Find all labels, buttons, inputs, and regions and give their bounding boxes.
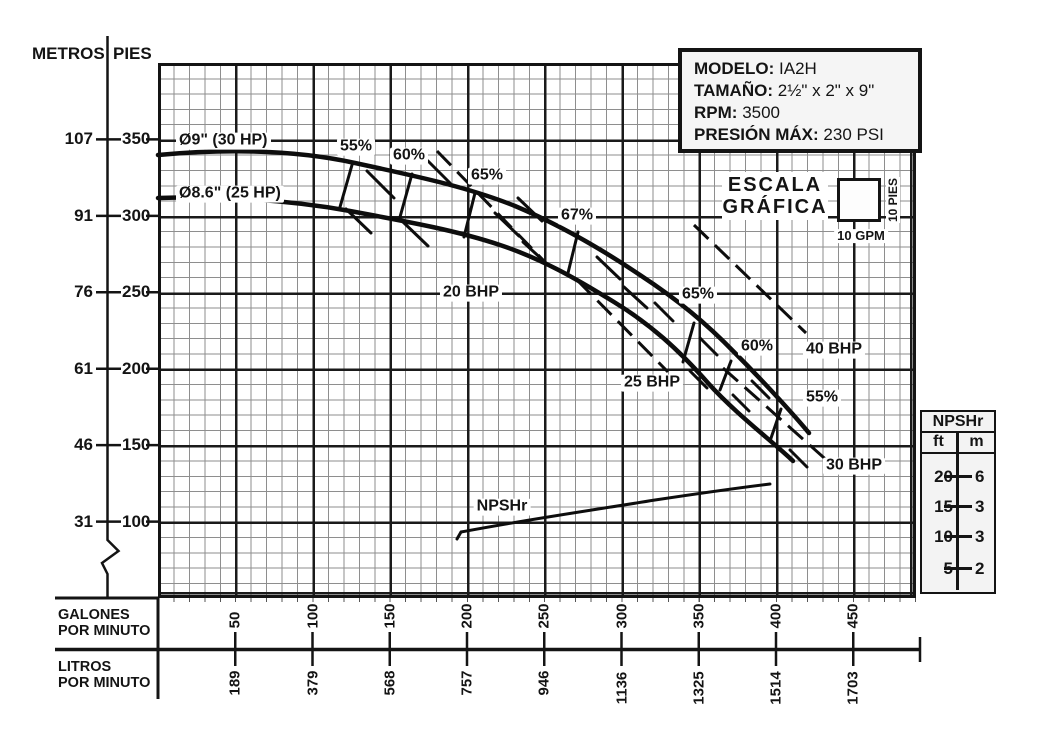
scale-y-label: 10 PIES — [886, 177, 900, 223]
annotation-25-bhp: 25 BHP — [621, 375, 683, 392]
pies-tick-label: 250 — [122, 282, 150, 302]
metros-tick-label: 46 — [38, 435, 93, 455]
annotation-55-: 55% — [337, 139, 375, 156]
gpm-tick-label: 400 — [768, 602, 785, 629]
gpm-tick-label: 150 — [381, 602, 398, 629]
gpm-tick-label: 100 — [304, 602, 321, 629]
npshr-table-body: 20615310352 — [922, 454, 994, 592]
pump-curve-chart-page: METROS PIES GALONESPOR MINUTO LITROSPOR … — [0, 0, 1052, 744]
lpm-tick-label: 568 — [381, 670, 398, 697]
gpm-tick-label: 450 — [845, 602, 862, 629]
annotation-65-: 65% — [679, 287, 717, 304]
pies-tick-label: 200 — [122, 359, 150, 379]
annotation-67-: 67% — [558, 208, 596, 225]
pressure-row: PRESIÓN MÁX: 230 PSI — [694, 124, 918, 146]
npshr-ft-value: 20 — [922, 467, 953, 487]
lpm-tick-label: 1514 — [768, 670, 785, 705]
annotation-40-bhp: 40 BHP — [803, 342, 865, 359]
metros-tick-label: 91 — [38, 206, 93, 226]
annotation--9-30-hp-: Ø9" (30 HP) — [176, 133, 271, 150]
pies-tick-label: 300 — [122, 206, 150, 226]
npshr-ft-value: 5 — [922, 559, 953, 579]
gpm-tick-label: 50 — [227, 611, 244, 630]
rpm-row: RPM: 3500 — [694, 102, 918, 124]
metros-tick-label: 31 — [38, 512, 93, 532]
npshr-scale-table: NPSHr ft m 20615310352 — [920, 410, 996, 594]
annotation-60-: 60% — [738, 339, 776, 356]
lpm-tick-label: 946 — [536, 670, 553, 697]
lpm-tick-label: 379 — [304, 670, 321, 697]
scale-x-label: 10 GPM — [834, 229, 888, 243]
size-row: TAMAÑO: 2½" x 2" x 9" — [694, 80, 918, 102]
annotation-20-bhp: 20 BHP — [440, 285, 502, 302]
npshr-table-title: NPSHr — [922, 412, 994, 433]
npshr-m-value: 3 — [975, 527, 984, 547]
lpm-tick-label: 1136 — [613, 670, 630, 705]
scale-legend-square — [837, 178, 881, 222]
metros-tick-label: 61 — [38, 359, 93, 379]
lpm-tick-label: 757 — [459, 670, 476, 697]
model-info-box: MODELO: IA2H TAMAÑO: 2½" x 2" x 9" RPM: … — [678, 48, 922, 153]
gpm-axis-title: GALONESPOR MINUTO — [58, 607, 150, 639]
head-axis-ticks — [96, 139, 159, 521]
model-row: MODELO: IA2H — [694, 58, 918, 80]
bottom-minor-ticks — [158, 598, 916, 602]
pies-tick-label: 150 — [122, 435, 150, 455]
annotation-30-bhp: 30 BHP — [823, 458, 885, 475]
lpm-axis-title: LITROSPOR MINUTO — [58, 659, 150, 691]
gpm-tick-label: 300 — [613, 602, 630, 629]
metros-header: METROS — [32, 44, 102, 64]
flow-axis-ticks — [235, 632, 920, 666]
annotation-55-: 55% — [803, 390, 841, 407]
npshr-m-value: 3 — [975, 497, 984, 517]
npshr-ft-value: 10 — [922, 527, 953, 547]
npshr-col-ft: ft — [922, 433, 955, 451]
lpm-tick-label: 1703 — [845, 670, 862, 705]
metros-tick-label: 76 — [38, 282, 93, 302]
lpm-tick-label: 1325 — [690, 670, 707, 705]
gpm-tick-label: 200 — [459, 602, 476, 629]
lpm-tick-label: 189 — [227, 670, 244, 697]
pies-tick-label: 100 — [122, 512, 150, 532]
scale-legend-title: ESCALAGRÁFICA — [722, 172, 828, 220]
metros-tick-label: 107 — [38, 129, 93, 149]
npshr-col-m: m — [960, 433, 993, 451]
gpm-tick-label: 250 — [536, 602, 553, 629]
annotation-npshr: NPSHr — [474, 499, 531, 516]
npshr-m-value: 6 — [975, 467, 984, 487]
annotation-60-: 60% — [390, 148, 428, 165]
annotation--8-6-25-hp-: Ø8.6" (25 HP) — [176, 186, 284, 203]
pies-header: PIES — [113, 44, 152, 64]
annotation-65-: 65% — [468, 168, 506, 185]
head-axis-line — [102, 36, 119, 597]
npshr-ft-value: 15 — [922, 497, 953, 517]
pies-tick-label: 350 — [122, 129, 150, 149]
gpm-tick-label: 350 — [690, 602, 707, 629]
npshr-m-value: 2 — [975, 559, 984, 579]
